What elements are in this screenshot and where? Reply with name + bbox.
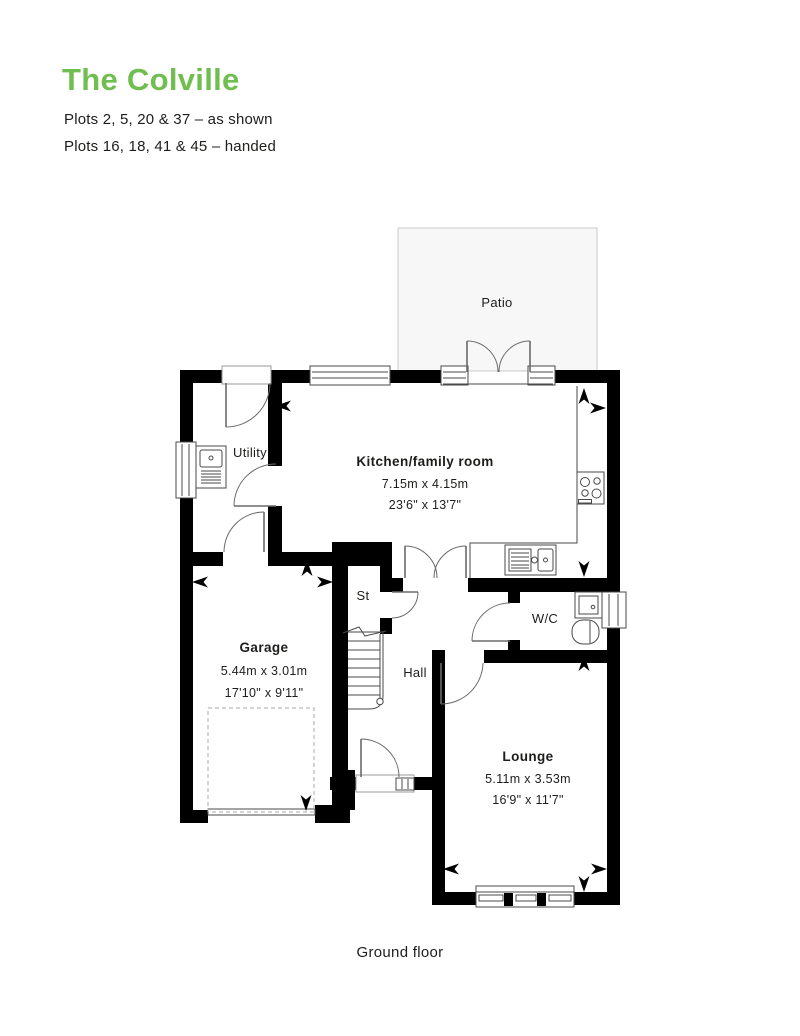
wall-segment (268, 552, 332, 566)
wall-segment (315, 805, 350, 823)
wall-segment (180, 370, 193, 442)
garage-dims-imperial: 17'10" x 9'11" (225, 686, 304, 700)
wall-segment (412, 777, 433, 790)
utility-sink (196, 446, 226, 488)
front-door (356, 739, 414, 792)
lounge-door (441, 663, 483, 704)
hob (577, 472, 604, 504)
stairs (343, 627, 386, 709)
floor-plan-svg: Patio (0, 0, 800, 1036)
wc-toilet (572, 620, 599, 644)
wall-segment (180, 810, 208, 823)
stair-newel (377, 698, 383, 704)
wall-segment (180, 498, 193, 823)
kitchen-window (310, 366, 390, 385)
patio-side-window-right (528, 366, 555, 385)
kitchen-label: Kitchen/family room (356, 454, 493, 469)
wc-basin (575, 592, 602, 618)
lounge-depth-arrow-down (579, 876, 590, 892)
kitchen-hall-double-doors (405, 546, 466, 578)
wall-segment (572, 892, 620, 905)
kitchen-dims-metric: 7.15m x 4.15m (382, 477, 469, 491)
lounge-width-arrow-left (443, 864, 459, 875)
kitchen-sink (505, 545, 556, 575)
wall-segment (432, 650, 445, 905)
wall-segment (380, 542, 392, 592)
utility-kitchen-door (234, 464, 276, 506)
wall-segment (607, 627, 620, 905)
patio-area: Patio (398, 228, 597, 371)
garage-parking-outline (208, 708, 314, 812)
lounge-label: Lounge (502, 749, 553, 764)
lounge-width-arrow-right (591, 864, 607, 875)
wall-segment (468, 578, 620, 592)
wall-segment (268, 383, 282, 466)
hall-label: Hall (403, 665, 427, 680)
wall-segment (332, 770, 355, 810)
wall-segment (484, 650, 620, 663)
wall-segment (270, 370, 310, 383)
utility-garage-door (224, 512, 264, 552)
wall-segment (508, 592, 520, 603)
wall-segment (268, 506, 282, 552)
front-door-sidelight (396, 778, 414, 790)
kitchen-depth-arrow-up (579, 388, 590, 404)
floorplan-page: The Colville Plots 2, 5, 20 & 37 – as sh… (0, 0, 800, 1036)
utility-window (176, 442, 196, 498)
patio-label: Patio (481, 295, 512, 310)
kitchen-depth-arrow-down (579, 561, 590, 577)
garage-dims-metric: 5.44m x 3.01m (221, 664, 308, 678)
wall-segment (390, 370, 443, 383)
window-mullion (504, 893, 513, 906)
patio-side-window-left (441, 366, 468, 385)
wc-window (602, 592, 626, 628)
wc-door (472, 603, 510, 641)
kitchen-width-arrow-right (590, 403, 606, 414)
lounge-window (476, 886, 574, 907)
room-labels: Kitchen/family room 7.15m x 4.15m 23'6" … (221, 445, 571, 807)
floor-label: Ground floor (357, 944, 444, 961)
wall-segment (392, 578, 403, 592)
store-label: St (357, 588, 370, 603)
wall-segment (432, 892, 478, 905)
wall-segment (180, 552, 223, 566)
utility-entrance-door (222, 366, 271, 427)
wc-label: W/C (532, 611, 558, 626)
store-door (392, 592, 418, 618)
lounge-dims-metric: 5.11m x 3.53m (485, 772, 571, 786)
wall-segment (332, 552, 348, 790)
kitchen-dims-imperial: 23'6" x 13'7" (389, 498, 461, 512)
utility-label: Utility (233, 445, 267, 460)
wall-segment (607, 370, 620, 593)
garage-width-arrow-right (317, 577, 333, 588)
lounge-dims-imperial: 16'9" x 11'7" (492, 793, 564, 807)
window-mullion (537, 893, 546, 906)
garage-width-arrow-left (192, 577, 208, 588)
garage-label: Garage (240, 640, 289, 655)
